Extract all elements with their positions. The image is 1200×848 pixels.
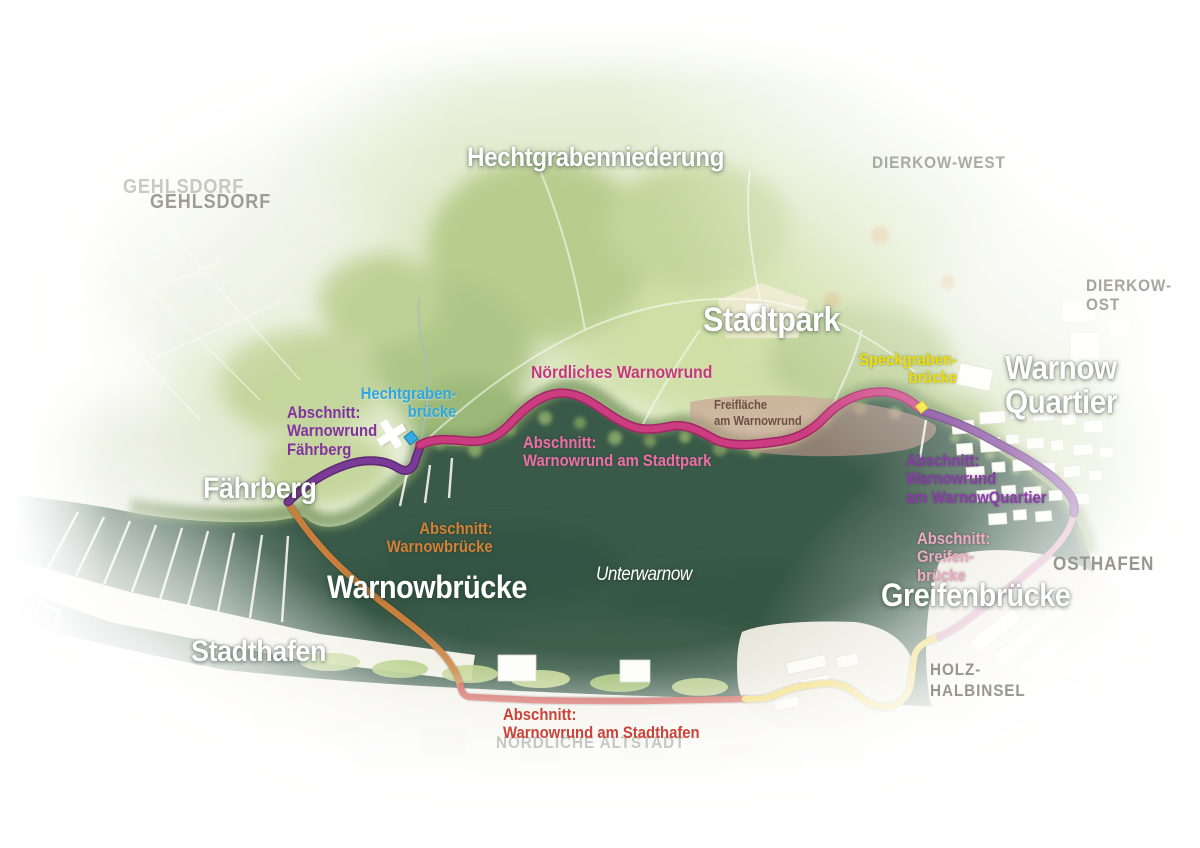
map-canvas: Hechtgrabenniederung GEHLSDORF GEHLSDORF… <box>0 0 1200 848</box>
map-artwork <box>0 0 1200 848</box>
